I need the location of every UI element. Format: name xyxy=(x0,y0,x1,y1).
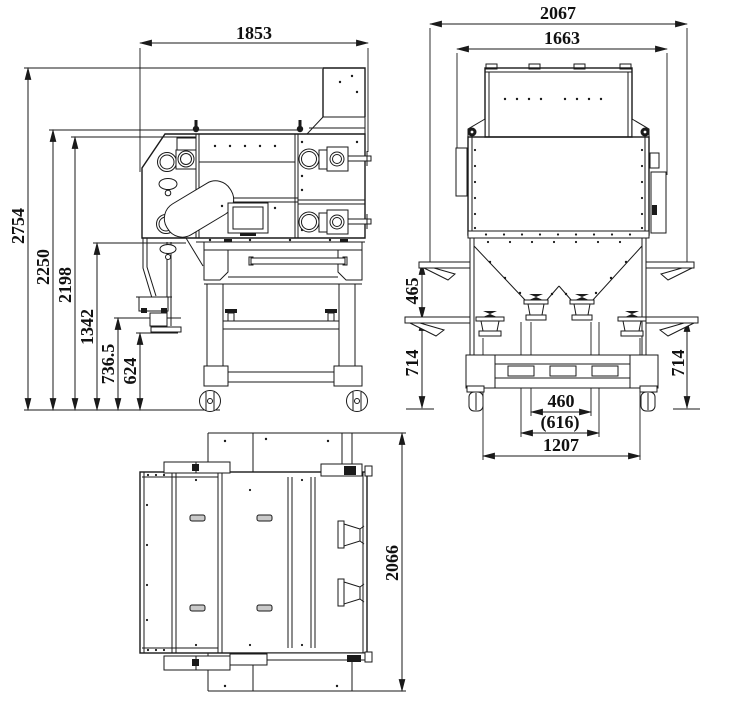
valve-knob xyxy=(159,179,177,190)
top-casters xyxy=(338,521,364,606)
spout-inner-left xyxy=(524,294,548,320)
front-main-body xyxy=(456,119,666,238)
top-brackets xyxy=(164,462,372,670)
top-caster-lower xyxy=(338,579,364,606)
side-left-compartment xyxy=(157,138,240,243)
dim-side-height-upper-label: 2250 xyxy=(33,249,53,285)
dim-front-616-label: (616) xyxy=(541,412,580,433)
dim-side-height-outlet-label: 736.5 xyxy=(98,344,118,385)
dim-side-height-mid-label: 1342 xyxy=(77,309,97,345)
front-right-side-panel xyxy=(651,172,666,233)
ejector-upper xyxy=(299,147,371,171)
side-ejector-units xyxy=(299,147,371,234)
front-caster-left xyxy=(467,386,484,411)
panel-handle xyxy=(257,515,272,521)
top-view-dimensions: 2066 xyxy=(382,433,402,691)
dim-side-height-bodytop-label: 2198 xyxy=(55,267,75,303)
spout-inner-right xyxy=(570,294,594,320)
front-feed-hopper xyxy=(485,64,632,137)
front-side-wings xyxy=(405,262,698,336)
ejector-lower xyxy=(299,210,371,234)
dim-front-460-label: 460 xyxy=(548,391,575,411)
panel-handle xyxy=(257,605,272,611)
dim-front-714-right-label: 714 xyxy=(668,350,688,377)
panel-handle xyxy=(190,605,205,611)
dim-front-width-overall-label: 2067 xyxy=(540,3,576,23)
dim-front-width-inner-label: 1663 xyxy=(544,28,580,48)
dim-side-width-label: 1853 xyxy=(236,23,272,43)
dim-front-465-label: 465 xyxy=(402,278,422,305)
dim-front-1207-label: 1207 xyxy=(543,435,579,455)
side-view: 1853 2754 2250 2198 1342 736.5 624 xyxy=(8,23,371,412)
front-left-side-panel xyxy=(456,148,467,196)
top-caster-upper xyxy=(338,521,364,548)
side-feed-hopper xyxy=(307,68,365,134)
dim-top-depth-label: 2066 xyxy=(382,545,402,581)
front-discharge-section xyxy=(470,238,646,355)
front-view: 2067 1663 465 714 714 460 (616) 1207 xyxy=(402,3,700,460)
spout-outer-left xyxy=(476,311,504,336)
side-caster-right xyxy=(347,391,368,412)
dim-front-714-left-label: 714 xyxy=(402,350,422,377)
dim-side-height-bracket-label: 624 xyxy=(120,358,140,385)
side-cart xyxy=(200,242,368,412)
top-machine-body xyxy=(140,472,367,653)
top-view: 2066 xyxy=(140,433,406,691)
side-caster-left xyxy=(200,391,221,412)
side-control-screen xyxy=(221,203,276,236)
panel-handle xyxy=(190,515,205,521)
drawing-canvas: 1853 2754 2250 2198 1342 736.5 624 xyxy=(0,0,729,705)
dim-side-height-overall-label: 2754 xyxy=(8,208,28,244)
front-caster-right xyxy=(640,386,657,411)
engineering-drawing: 1853 2754 2250 2198 1342 736.5 624 xyxy=(0,0,729,705)
